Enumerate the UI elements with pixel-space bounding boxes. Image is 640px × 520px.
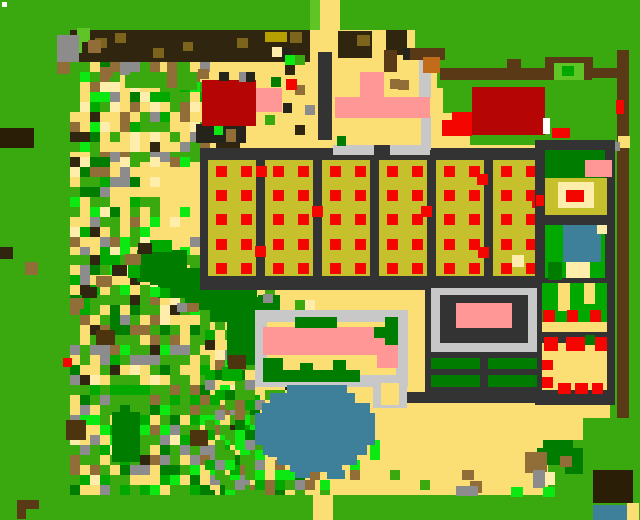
fallen-log-dark: [138, 243, 152, 254]
berry-plot-rows: [542, 322, 607, 332]
debris-left-of-pond: [245, 460, 255, 470]
debris-mid-left: [120, 295, 130, 305]
berry-plot-berries: [567, 310, 578, 322]
debris-upper-left: [190, 142, 200, 152]
greenhouse-plants: [333, 360, 346, 372]
debris-below-field: [295, 300, 305, 310]
east-pond-sand: [597, 225, 607, 234]
debris-upper-left: [80, 72, 90, 82]
debris-lower-left: [180, 485, 190, 495]
shed-green-benches: [431, 358, 480, 369]
berry-item: [63, 358, 72, 367]
debris-upper-left: [110, 92, 120, 102]
debris-lower-left: [190, 455, 200, 465]
coop-debris-stone: [239, 72, 246, 82]
pond-water: [327, 470, 345, 479]
debris-lower-left: [80, 405, 90, 415]
coop-debris-black: [219, 72, 229, 81]
debris-upper-left: [190, 102, 200, 112]
debris-yard: [285, 65, 295, 75]
debris-mid-left: [190, 335, 200, 345]
debris-upper-left: [160, 112, 170, 122]
debris-lower-left: [100, 425, 110, 435]
crop-field-crop-dot: [501, 214, 512, 225]
debris-mid-left: [90, 255, 100, 265]
debris-mid-left: [180, 345, 190, 355]
debris-mid-left: [120, 325, 130, 335]
greenhouse-plants: [272, 370, 360, 382]
debris-lower-left: [160, 475, 170, 485]
tree-cluster-fringe: [150, 240, 172, 252]
crop-field-crop-dot: [355, 263, 366, 274]
debris-mid-left: [100, 345, 110, 355]
debris-left-of-pond: [225, 400, 235, 410]
border-log: [0, 247, 13, 259]
debris-lower-left: [150, 395, 160, 405]
debris-upper-left: [100, 102, 110, 112]
yard-berry: [286, 79, 297, 90]
debris-mid-left: [90, 345, 100, 355]
debris-left-of-pond: [275, 470, 285, 480]
crop-field-bare-spot: [512, 255, 524, 267]
debris-mid-left: [150, 325, 160, 335]
debris-left-band: [100, 237, 110, 247]
debris-sparse-mid: [170, 217, 180, 227]
debris-mid-left: [140, 345, 150, 355]
debris-lower-left: [140, 395, 150, 405]
debris-upper-left: [130, 132, 140, 142]
debris-lower-left: [200, 395, 210, 405]
debris-lower-left: [170, 455, 180, 465]
debris-lower-left: [190, 445, 200, 455]
debris-lower-left: [150, 455, 160, 465]
debris-left-band: [90, 157, 100, 167]
debris-left-of-pond: [235, 400, 245, 410]
debris-below-field: [245, 380, 255, 390]
debris-lower-left: [90, 455, 100, 465]
crop-field-crop-dot: [330, 166, 341, 177]
debris-mid-left: [170, 345, 180, 355]
debris-lower-left: [80, 455, 90, 465]
border-log-dark: [0, 128, 34, 148]
debris-upper-left: [110, 82, 120, 92]
debris-upper-left: [160, 152, 170, 162]
east-plot-red-item: [536, 195, 544, 206]
debris-left-band: [100, 157, 110, 167]
stone-bit: [120, 62, 130, 75]
dirt-strip-spot: [290, 32, 302, 43]
berry-plot-rows: [584, 283, 595, 304]
debris-left-of-pond: [245, 390, 255, 400]
debris-upper-left: [130, 62, 140, 72]
debris-left-of-pond: [225, 430, 235, 440]
debris-upper-left: [140, 152, 150, 162]
debris-mid-left: [120, 335, 130, 345]
debris-left-band: [130, 207, 140, 217]
grass-right-border: [630, 0, 640, 520]
fallen-log-light: [96, 276, 112, 287]
crop-field-crop-dot: [330, 214, 341, 225]
debris-upper-left: [110, 152, 120, 162]
debris-mid-left: [160, 345, 170, 355]
greenhouse-plants: [374, 327, 385, 338]
berry-plot-rows: [558, 283, 570, 311]
debris-mid-left: [130, 375, 140, 385]
debris-lower-left: [90, 395, 100, 405]
debris-lower-left: [180, 385, 190, 395]
debris-upper-left: [180, 92, 190, 102]
fence-rails: [584, 57, 592, 80]
debris-upper-left: [190, 152, 200, 162]
debris-mid-left: [120, 315, 130, 325]
debris-mid-left: [160, 365, 170, 375]
debris-left-band: [70, 207, 80, 217]
tomato-plot-tomatoes: [592, 383, 603, 394]
debris-mid-left: [140, 305, 150, 315]
debris-lower-left: [110, 475, 120, 485]
crop-field-crop-dot: [387, 263, 398, 274]
fallen-log-light: [100, 67, 113, 77]
debris-upper-left: [80, 142, 90, 152]
debris-mid-left: [80, 355, 90, 365]
debris-left-of-pond: [225, 480, 235, 490]
crop-field-crop-dot: [241, 239, 252, 250]
debris-left-band: [110, 177, 120, 187]
debris-left-of-pond: [235, 430, 245, 440]
debris-left-of-pond: [245, 440, 255, 450]
debris-mid-left: [150, 365, 160, 375]
debris-upper-left: [150, 92, 160, 102]
debris-left-of-pond: [215, 450, 225, 460]
debris-upper-left: [100, 92, 110, 102]
debris-below-pond: [350, 470, 360, 480]
debris-left-band: [100, 207, 110, 217]
debris-upper-left: [120, 122, 130, 132]
debris-lower-left: [110, 395, 120, 405]
debris-upper-left: [130, 142, 140, 152]
debris-mid-left: [70, 335, 80, 345]
debris-lower-left: [70, 455, 80, 465]
debris-mid-left: [130, 335, 140, 345]
crop-field-crop-dot: [273, 239, 284, 250]
crop-field-crop-dot: [273, 166, 284, 177]
debris-mid-left: [90, 305, 100, 315]
debris-left-band: [130, 197, 140, 207]
stump: [190, 430, 208, 446]
debris-mid-left: [140, 325, 150, 335]
debris-left-of-pond: [265, 480, 275, 490]
crop-field-crop-dot: [216, 190, 227, 201]
debris-mid-left: [110, 315, 120, 325]
debris-below-field: [305, 300, 315, 310]
debris-mid-left: [190, 345, 200, 355]
debris-mid-left: [100, 255, 110, 265]
debris-left-band: [70, 237, 80, 247]
debris-below-pond: [390, 470, 400, 480]
debris-upper-left: [80, 62, 90, 72]
crop-field-crop-dot: [330, 190, 341, 201]
dirt-strip-gold: [265, 32, 287, 42]
crop-field-crop-dot: [330, 263, 341, 274]
debris-upper-left: [160, 122, 170, 132]
debris-left-band: [110, 237, 120, 247]
farmhouse-roof-pink: [335, 97, 430, 118]
debris-mid-left: [150, 305, 160, 315]
farmhouse-window-brown: [390, 79, 400, 89]
debris-lower-left: [190, 475, 200, 485]
se-water-corner: [593, 505, 628, 520]
crop-field-crop-dot: [412, 166, 423, 177]
debris-upper-left: [90, 72, 100, 82]
debris-lower-left: [120, 465, 130, 475]
debris-sparse-mid: [170, 157, 180, 167]
debris-mid-left: [100, 365, 110, 375]
debris-sparse-mid: [180, 157, 190, 167]
shed-green-benches: [488, 375, 537, 387]
debris-lower-left: [170, 435, 180, 445]
pond-water: [268, 447, 280, 457]
dirt-strip-spot: [237, 38, 248, 48]
crop-field-crop-dot: [387, 239, 398, 250]
debris-left-band: [90, 197, 100, 207]
debris-lower-left: [160, 445, 170, 455]
dirt-strip-spot: [153, 48, 164, 58]
debris-mid-left: [110, 355, 120, 365]
debris-lower-left: [100, 445, 110, 455]
debris-lower-left: [140, 455, 150, 465]
debris-lower-left: [80, 395, 90, 405]
debris-upper-left: [80, 102, 90, 112]
debris-left-band: [110, 227, 120, 237]
crop-field-crop-dot: [478, 247, 489, 258]
debris-lower-left: [90, 445, 100, 455]
debris-below-field: [215, 350, 225, 360]
debris-lower-left: [140, 415, 150, 425]
debris-lower-left: [130, 465, 140, 475]
debris-upper-left: [150, 62, 160, 72]
debris-mid-left: [120, 345, 130, 355]
debris-lower-left: [190, 385, 200, 395]
debris-mid-left: [130, 295, 140, 305]
debris-lower-left: [160, 385, 170, 395]
debris-left-of-pond: [255, 480, 265, 490]
boulder: [57, 35, 79, 63]
debris-upper-left: [70, 122, 80, 132]
debris-upper-left: [150, 142, 160, 152]
debris-upper-left: [90, 132, 100, 142]
debris-left-band: [70, 167, 80, 177]
farm-map[interactable]: [0, 0, 640, 520]
debris-left-band: [70, 197, 80, 207]
barn-red-crates: [442, 120, 472, 136]
debris-left-of-pond: [235, 480, 245, 490]
crop-field-crop-dot: [387, 190, 398, 201]
debris-lower-left: [170, 475, 180, 485]
debris-left-band: [130, 227, 140, 237]
debris-left-of-pond: [255, 460, 265, 470]
debris-mid-left: [170, 355, 180, 365]
debris-left-of-pond: [215, 410, 225, 420]
east-plot-red-item: [566, 190, 584, 202]
debris-mid-left: [100, 265, 110, 275]
crop-field-crop-dot: [273, 190, 284, 201]
house-wall-bar: [318, 52, 332, 140]
debris-mid-left: [120, 285, 130, 295]
debris-left-band: [120, 167, 130, 177]
crop-field-crop-dot: [241, 214, 252, 225]
debris-left-of-pond: [245, 430, 255, 440]
bottom-path-gap: [313, 495, 333, 520]
debris-left-band: [90, 187, 100, 197]
debris-left-of-pond: [205, 460, 215, 470]
debris-mid-left: [80, 375, 90, 385]
barn-building: [472, 87, 545, 135]
debris-left-band: [120, 177, 130, 187]
debris-mid-left: [160, 305, 170, 315]
debris-lower-left: [160, 455, 170, 465]
debris-mid-left: [170, 325, 180, 335]
tomato-plot-tomatoes: [575, 383, 588, 394]
debris-upper-left: [100, 122, 110, 132]
bottom-border-log: [17, 507, 26, 519]
debris-mid-left: [80, 345, 90, 355]
barn-red-crates: [552, 128, 570, 138]
debris-mid-left: [70, 255, 80, 265]
debris-lower-left: [150, 425, 160, 435]
debris-mid-left: [110, 305, 120, 315]
stump: [96, 330, 115, 345]
debris-lower-left: [190, 465, 200, 475]
debris-mid-left: [90, 375, 100, 385]
crop-field-crop-dot: [298, 239, 309, 250]
debris-left-band: [90, 167, 100, 177]
debris-upper-left: [180, 102, 190, 112]
debris-lower-left: [90, 465, 100, 475]
crop-field-crop-dot: [255, 246, 266, 257]
debris-upper-left: [110, 102, 120, 112]
fence-rails: [440, 68, 545, 80]
debris-below-field: [205, 370, 215, 380]
stump: [66, 420, 86, 440]
debris-left-of-pond: [225, 450, 235, 460]
debris-upper-left: [180, 62, 190, 72]
debris-lower-left: [190, 485, 200, 495]
debris-below-pond: [420, 480, 430, 490]
debris-mid-left: [100, 295, 110, 305]
tree-cluster: [210, 297, 260, 322]
crop-field-crop-dot: [444, 263, 455, 274]
greenhouse-door-floor: [381, 383, 399, 405]
coop-debris-black: [283, 103, 292, 113]
debris-lower-left: [140, 385, 150, 395]
debris-left-of-pond: [235, 390, 245, 400]
crop-field-crop-dot: [216, 214, 227, 225]
debris-lower-left: [160, 425, 170, 435]
crop-field-crop-dot: [241, 263, 252, 274]
east-pond-water: [563, 225, 601, 262]
debris-sparse-mid: [140, 227, 150, 237]
debris-upper-left: [90, 102, 100, 112]
crop-field-crop-dot: [469, 214, 480, 225]
se-weeds: [543, 487, 555, 497]
debris-lower-left: [80, 475, 90, 485]
debris-mid-left: [100, 355, 110, 365]
debris-lower-left: [140, 465, 150, 475]
debris-mid-left: [170, 375, 180, 385]
debris-mid-left: [140, 285, 150, 295]
debris-lower-left: [170, 465, 180, 475]
debris-upper-left: [150, 102, 160, 112]
debris-upper-left: [180, 142, 190, 152]
debris-mid-left: [90, 265, 100, 275]
tomato-plot-leaf: [585, 335, 595, 345]
dirt-strip-tan: [272, 47, 282, 57]
tomato-plot-tomatoes: [542, 360, 553, 370]
crop-field-crop-dot: [412, 239, 423, 250]
debris-upper-left: [70, 92, 80, 102]
debris-mid-left: [70, 325, 80, 335]
debris-lower-left: [170, 445, 180, 455]
debris-upper-left: [180, 112, 190, 122]
debris-upper-left: [90, 82, 100, 92]
debris-lower-left: [160, 435, 170, 445]
crop-field-crop-dot: [469, 190, 480, 201]
debris-mid-left: [110, 345, 120, 355]
debris-mid-left: [110, 255, 120, 265]
debris-upper-left: [90, 122, 100, 132]
debris-lower-left: [120, 395, 130, 405]
crop-field-crop-dot: [256, 166, 267, 177]
debris-lower-left: [140, 445, 150, 455]
coop-roof-pink: [256, 88, 282, 112]
shed-pink-bed: [456, 303, 512, 328]
crop-field-crop-dot: [355, 166, 366, 177]
dirt-strip-spot: [115, 33, 126, 43]
debris-mid-left: [170, 335, 180, 345]
debris-sparse-mid: [150, 217, 160, 227]
debris-lower-left: [100, 405, 110, 415]
debris-mid-left: [80, 275, 90, 285]
debris-mid-left: [130, 325, 140, 335]
debris-upper-left: [90, 142, 100, 152]
pond-water: [295, 470, 310, 478]
crop-field-crop-dot: [412, 190, 423, 201]
debris-lower-left: [180, 395, 190, 405]
debris-upper-left: [90, 92, 100, 102]
debris-lower-left: [170, 385, 180, 395]
debris-mid-left: [180, 375, 190, 385]
house-tree-knot: [357, 35, 370, 46]
debris-lower-left: [160, 405, 170, 415]
debris-left-band: [90, 177, 100, 187]
debris-mid-left: [160, 315, 170, 325]
debris-mid-left: [110, 295, 120, 305]
crop-field-crop-dot: [501, 166, 512, 177]
debris-left-of-pond: [235, 410, 245, 420]
debris-mid-left: [190, 255, 200, 265]
debris-left-band: [110, 207, 120, 217]
grass-tuft: [125, 72, 160, 88]
debris-lower-left: [70, 475, 80, 485]
debris-mid-left: [70, 275, 80, 285]
debris-left-band: [90, 217, 100, 227]
debris-left-of-pond: [235, 420, 245, 430]
debris-lower-left: [170, 425, 180, 435]
debris-sparse-mid: [180, 207, 190, 217]
farmhouse-door: [374, 145, 390, 157]
debris-left-band: [80, 227, 90, 237]
fallen-log-light: [70, 298, 84, 309]
